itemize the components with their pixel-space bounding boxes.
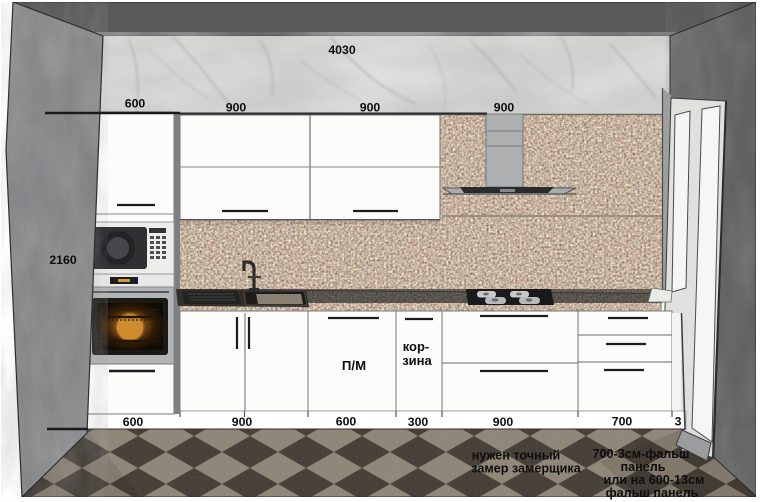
svg-text:700: 700 [612,415,633,429]
svg-text:4030: 4030 [328,43,356,57]
svg-text:700-3см-фальш: 700-3см-фальш [593,447,690,461]
svg-text:3: 3 [675,415,682,429]
svg-text:П/М: П/М [342,358,366,373]
svg-text:600: 600 [125,97,146,111]
svg-text:кор-: кор- [403,339,430,354]
svg-text:900: 900 [232,415,253,429]
svg-text:панель: панель [621,460,666,474]
svg-text:зина: зина [402,353,432,368]
svg-text:900: 900 [226,101,247,115]
svg-text:2160: 2160 [49,253,77,267]
svg-text:замер замерщика: замер замерщика [471,462,581,476]
svg-text:или на 600-13см: или на 600-13см [604,473,705,487]
svg-text:600: 600 [336,415,357,429]
svg-text:300: 300 [408,415,429,429]
svg-text:900: 900 [493,415,514,429]
svg-text:фальш панель: фальш панель [606,486,699,500]
svg-text:900: 900 [494,101,515,115]
svg-text:600: 600 [123,415,144,429]
svg-text:нужен точный: нужен точный [472,449,560,463]
svg-text:900: 900 [360,101,381,115]
